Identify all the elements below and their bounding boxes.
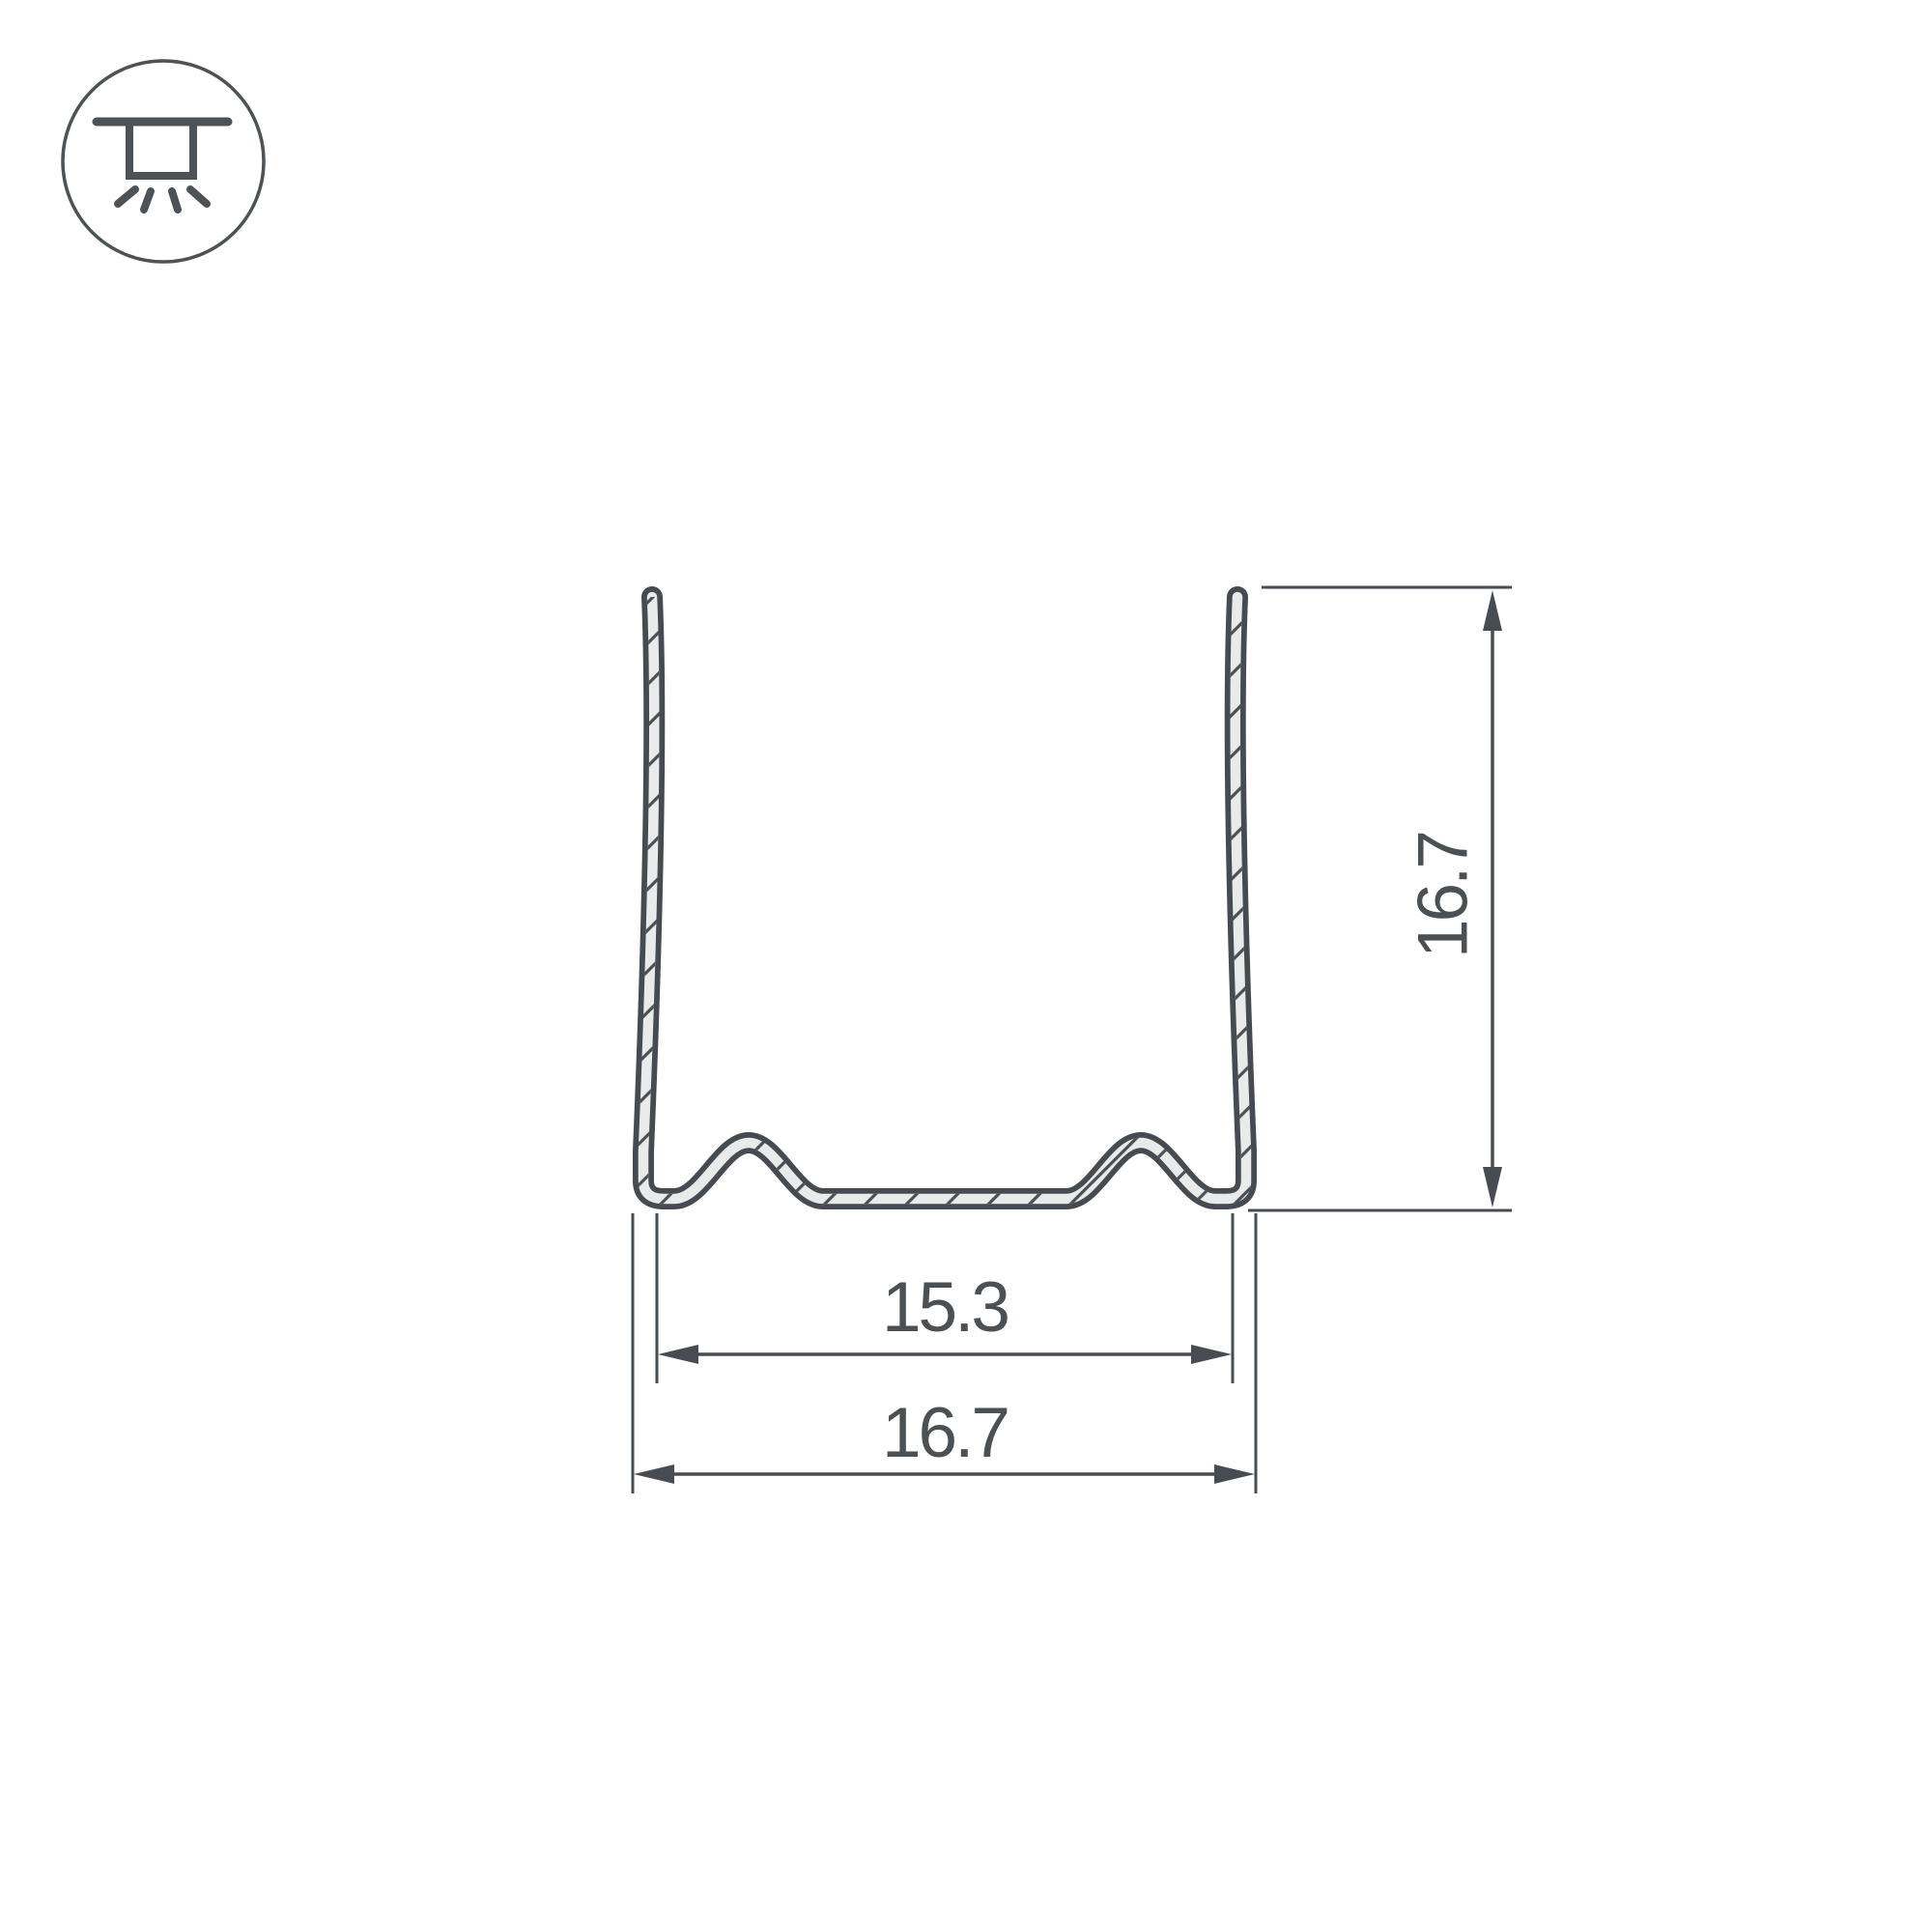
light-ray-icon: [172, 191, 178, 210]
arrowhead-bottom: [1483, 1167, 1502, 1207]
profile-cross-section: [643, 597, 1246, 1199]
outer-width-label: 16.7: [882, 1398, 1008, 1468]
profile-drawing-svg: [0, 0, 1932, 1932]
icon-fixture-box: [129, 125, 193, 176]
light-ray-icon: [118, 189, 135, 204]
arrowhead-left: [634, 1464, 674, 1484]
arrowhead-left: [658, 1345, 698, 1364]
icon-circle: [63, 61, 264, 262]
profile-hatch: [643, 597, 1246, 1199]
inner-width-label: 15.3: [882, 1272, 1008, 1343]
technical-drawing-page: 15.3 16.7 16.7: [0, 0, 1932, 1932]
arrowhead-top: [1483, 590, 1502, 631]
light-ray-icon: [190, 189, 207, 204]
ceiling-light-icon: [63, 61, 264, 262]
icon-light-rays: [118, 189, 207, 210]
height-label: 16.7: [1408, 833, 1479, 958]
light-ray-icon: [144, 191, 151, 210]
profile-core: [643, 597, 1246, 1199]
arrowhead-right: [1214, 1464, 1255, 1484]
profile-outline: [643, 597, 1246, 1199]
arrowhead-right: [1191, 1345, 1232, 1364]
